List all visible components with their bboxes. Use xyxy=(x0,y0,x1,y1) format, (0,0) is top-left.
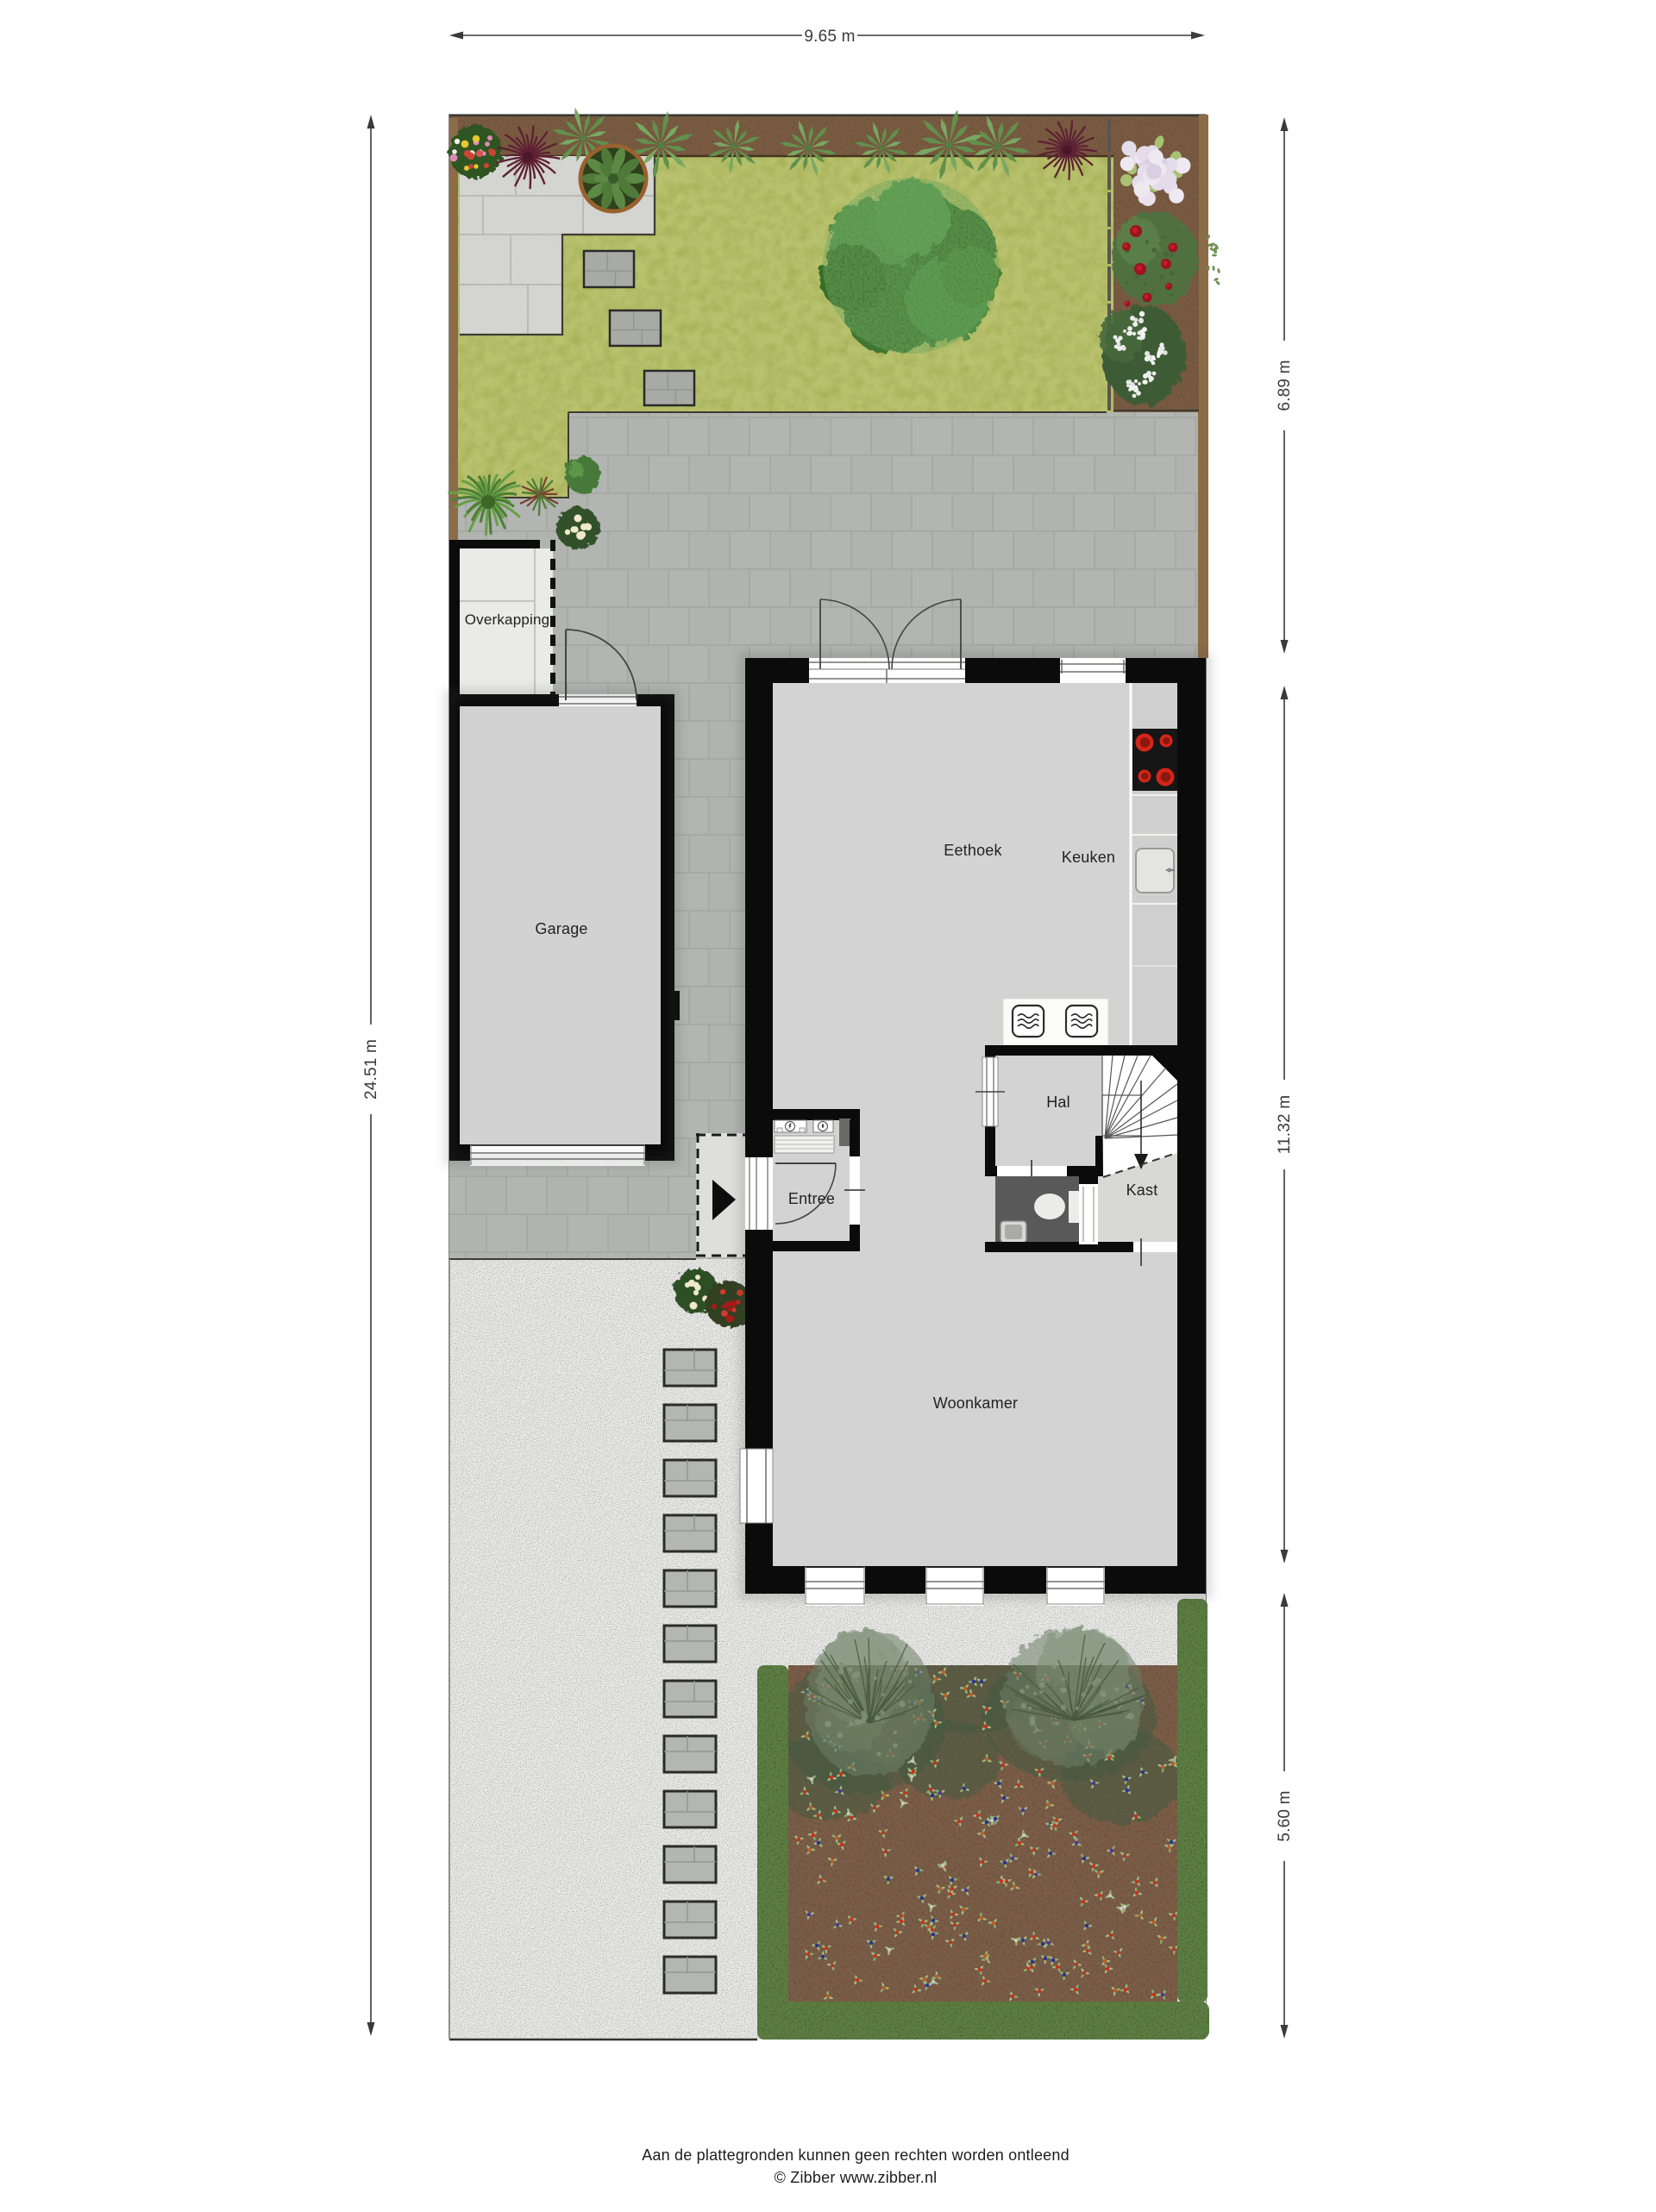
svg-text:6.89 m: 6.89 m xyxy=(1276,360,1294,410)
svg-text:Woonkamer: Woonkamer xyxy=(933,1394,1019,1412)
svg-text:Aan de plattegronden kunnen ge: Aan de plattegronden kunnen geen rechten… xyxy=(642,2146,1069,2164)
svg-text:Hal: Hal xyxy=(1046,1093,1070,1111)
svg-text:Garage: Garage xyxy=(535,920,587,937)
svg-text:11.32 m: 11.32 m xyxy=(1276,1095,1294,1155)
svg-text:24.51 m: 24.51 m xyxy=(362,1039,380,1100)
svg-text:Overkapping: Overkapping xyxy=(465,611,550,628)
svg-text:Entree: Entree xyxy=(788,1190,835,1207)
svg-text:9.65 m: 9.65 m xyxy=(804,28,855,46)
svg-text:Keuken: Keuken xyxy=(1062,849,1115,866)
svg-text:Eethoek: Eethoek xyxy=(944,842,1002,859)
svg-text:5.60 m: 5.60 m xyxy=(1276,1790,1294,1841)
svg-text:Kast: Kast xyxy=(1126,1181,1158,1199)
svg-text:© Zibber www.zibber.nl: © Zibber www.zibber.nl xyxy=(775,2169,938,2186)
